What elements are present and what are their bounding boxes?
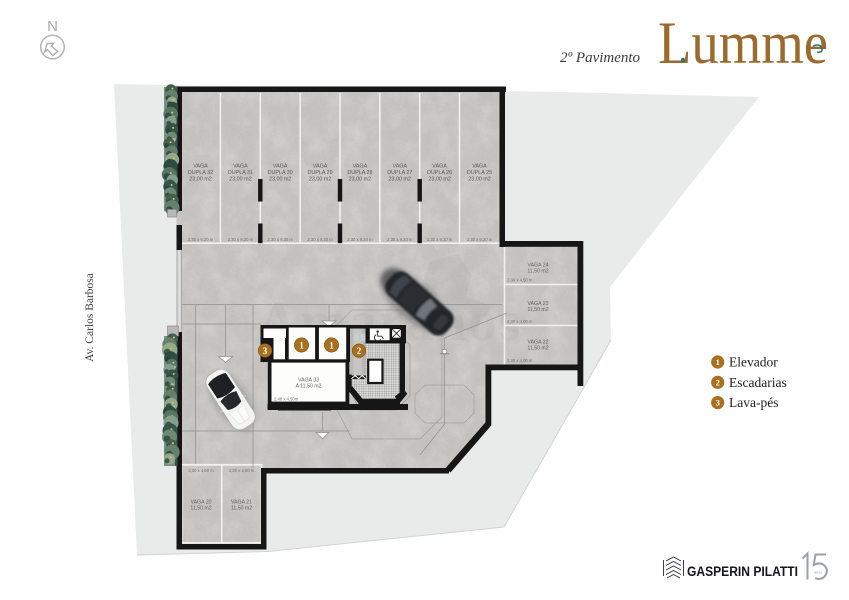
svg-text:VAGA: VAGA [233,164,248,170]
svg-text:2: 2 [716,377,720,387]
svg-text:DUPLA 30: DUPLA 30 [268,170,293,176]
svg-text:1: 1 [329,340,334,350]
svg-text:23,00 m2: 23,00 m2 [269,177,291,183]
svg-text:N: N [47,18,58,35]
svg-text:Escadarias: Escadarias [729,375,787,390]
svg-text:11,50 m2: 11,50 m2 [527,346,548,352]
svg-text:VAGA: VAGA [313,164,328,170]
svg-text:VAGA: VAGA [393,164,408,170]
svg-text:2,30 x 9,20 m: 2,30 x 9,20 m [307,237,333,242]
svg-text:2,30 x 4,00 m: 2,30 x 4,00 m [229,468,255,473]
svg-text:11,50 m2: 11,50 m2 [231,506,252,512]
svg-text:23,00 m2: 23,00 m2 [428,177,450,183]
svg-text:A 11,50 m2: A 11,50 m2 [296,384,322,390]
svg-text:2,30 x 9,20 m: 2,30 x 9,20 m [427,237,453,242]
svg-text:Elevador: Elevador [729,355,778,370]
svg-text:2º Pavimento: 2º Pavimento [560,50,641,66]
svg-text:2,30 x 4,60 m: 2,30 x 4,60 m [188,468,214,473]
svg-text:DUPLA 31: DUPLA 31 [228,170,253,176]
svg-text:23,00 m2: 23,00 m2 [349,177,371,183]
svg-text:VAGA: VAGA [353,164,368,170]
svg-text:23,00 m2: 23,00 m2 [309,177,331,183]
svg-text:1: 1 [299,340,304,350]
svg-text:2,30 x 4,50 m: 2,30 x 4,50 m [507,278,533,283]
svg-text:11,50 m2: 11,50 m2 [527,269,548,275]
svg-text:2,30 x 9,20 m: 2,30 x 9,20 m [467,237,493,242]
svg-text:2,30 x 9,20 m: 2,30 x 9,20 m [387,237,413,242]
svg-text:VAGA: VAGA [193,164,208,170]
svg-text:2,30 x 4,00 m: 2,30 x 4,00 m [507,319,533,324]
svg-text:VAGA: VAGA [432,164,447,170]
svg-text:VAGA: VAGA [472,164,487,170]
svg-text:2,30 x 9,20 m: 2,30 x 9,20 m [347,237,373,242]
svg-text:Av. Carlos Barbosa: Av. Carlos Barbosa [84,273,96,362]
svg-text:11,50 m2: 11,50 m2 [527,307,548,313]
svg-text:2,48 x 4,50m: 2,48 x 4,50m [274,397,299,402]
svg-text:DUPLA 28: DUPLA 28 [347,170,372,176]
svg-text:23,00 m2: 23,00 m2 [189,177,211,183]
svg-text:2,30 x 9,20 m: 2,30 x 9,20 m [188,237,214,242]
svg-text:3: 3 [716,398,720,408]
svg-text:2,30 x 9,20 m: 2,30 x 9,20 m [268,237,294,242]
svg-text:VAGA: VAGA [273,164,288,170]
svg-text:Lumme: Lumme [658,10,828,76]
svg-text:11,50 m2: 11,50 m2 [190,506,211,512]
svg-text:anos: anos [814,571,822,575]
svg-text:2,30 x 4,00 m: 2,30 x 4,00 m [507,358,533,363]
svg-text:2,30 x 9,20 m: 2,30 x 9,20 m [228,237,254,242]
svg-text:GASPERIN PILATTI: GASPERIN PILATTI [687,564,798,579]
svg-text:1: 1 [716,357,720,367]
svg-text:DUPLA 32: DUPLA 32 [188,170,213,176]
svg-text:3: 3 [263,346,268,356]
svg-text:Lava-pés: Lava-pés [729,395,778,410]
svg-text:2: 2 [357,346,362,356]
svg-text:DUPLA 26: DUPLA 26 [427,170,452,176]
svg-text:DUPLA 27: DUPLA 27 [387,170,412,176]
svg-text:23,00 m2: 23,00 m2 [468,177,490,183]
svg-text:DUPLA 25: DUPLA 25 [467,170,492,176]
svg-text:DUPLA 29: DUPLA 29 [308,170,333,176]
svg-text:23,00 m2: 23,00 m2 [389,177,411,183]
svg-text:23,00 m2: 23,00 m2 [229,177,251,183]
